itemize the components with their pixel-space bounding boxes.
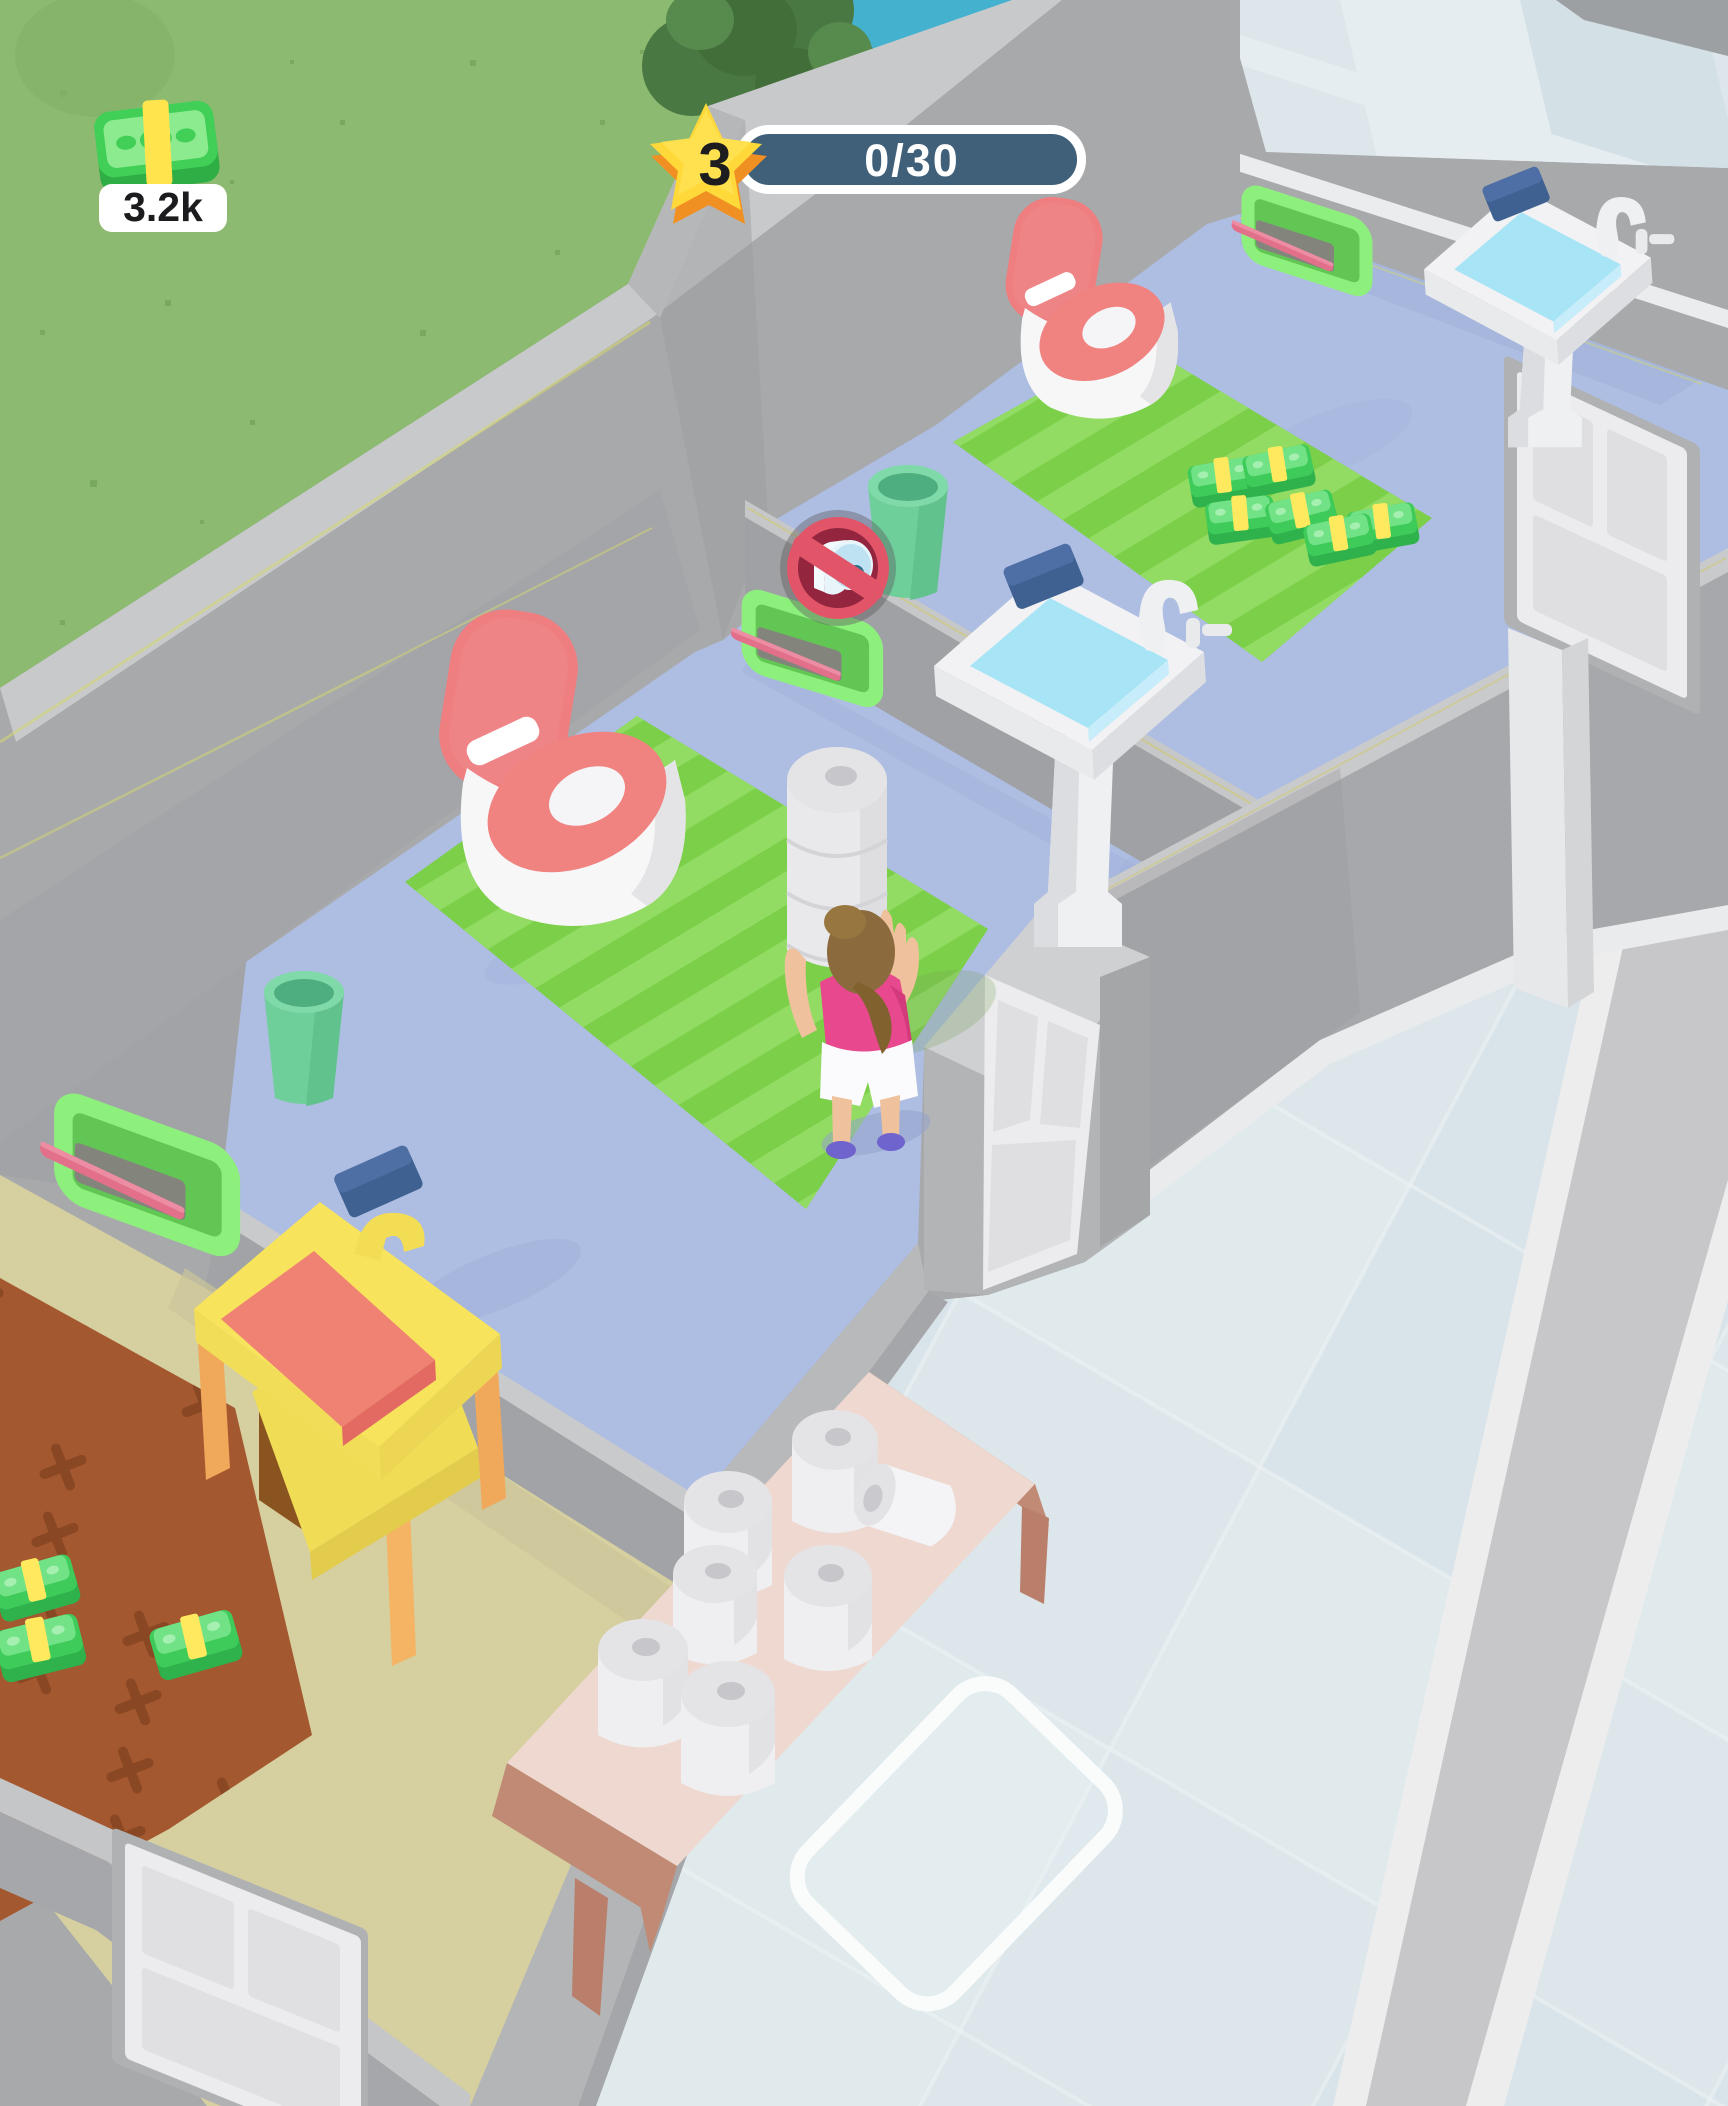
svg-text:0/30: 0/30 <box>864 135 960 186</box>
svg-text:3: 3 <box>698 131 731 198</box>
svg-text:3.2k: 3.2k <box>123 184 203 230</box>
